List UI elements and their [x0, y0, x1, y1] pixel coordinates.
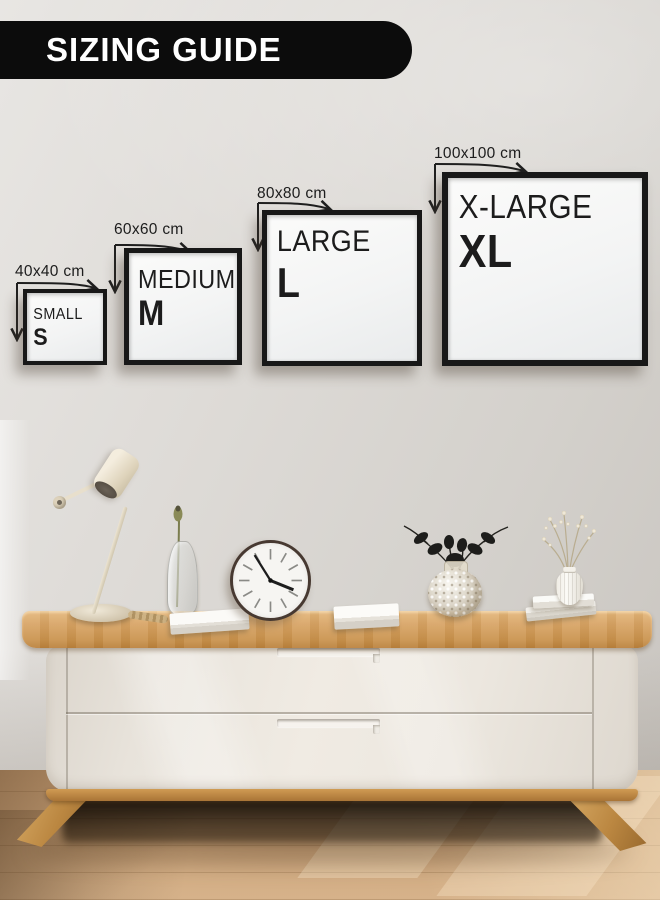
frame-small-mat: SMALL S [27, 293, 103, 361]
frame-large: LARGE L [262, 210, 422, 366]
dried-flower-sprigs [530, 502, 606, 576]
clock-hour-hand [271, 581, 294, 590]
cabinet-under-shadow [62, 797, 602, 843]
wall-clock [230, 540, 311, 621]
drawer-handle-bottom [277, 719, 380, 727]
frame-xlarge-mat: X-LARGE XL [448, 178, 642, 360]
dimension-label-medium: 60x60 cm [114, 221, 184, 239]
frame-xlarge: X-LARGE XL [442, 172, 648, 366]
frame-medium-mat: MEDIUM M [129, 253, 237, 360]
size-code-small: S [33, 325, 95, 351]
bud-vase [167, 541, 198, 615]
size-name-xlarge: X-LARGE [459, 189, 623, 225]
page-title: SIZING GUIDE [46, 31, 282, 69]
desk-lamp-joint [53, 496, 66, 509]
cabinet-seam-right [592, 645, 594, 792]
dimension-label-large: 80x80 cm [257, 185, 327, 203]
clock-minute-hand [255, 555, 271, 580]
frame-medium: MEDIUM M [124, 248, 242, 365]
cabinet-seam-left [66, 645, 68, 792]
drawer-divider [66, 712, 592, 714]
size-code-large: L [277, 260, 402, 305]
size-name-small: SMALL [33, 306, 95, 323]
dimension-label-xlarge: 100x100 cm [434, 145, 521, 163]
size-name-medium: MEDIUM [138, 265, 226, 293]
size-code-medium: M [138, 295, 226, 333]
dimension-label-small: 40x40 cm [15, 263, 85, 281]
frame-small: SMALL S [23, 289, 107, 365]
frame-large-mat: LARGE L [267, 215, 417, 361]
sideboard-body [46, 645, 638, 792]
clock-face [233, 543, 308, 618]
sizing-guide-poster: SIZING GUIDE 40x40 cm 60x60 cm 80x80 cm … [0, 0, 660, 900]
title-banner: SIZING GUIDE [0, 21, 412, 79]
desk-lamp-base [70, 604, 132, 622]
bubble-vase [428, 569, 482, 617]
drawer-handle-top [277, 648, 380, 656]
book [333, 603, 399, 629]
sideboard-base-rim [46, 789, 638, 801]
size-name-large: LARGE [277, 226, 402, 258]
size-code-xlarge: XL [459, 227, 623, 277]
